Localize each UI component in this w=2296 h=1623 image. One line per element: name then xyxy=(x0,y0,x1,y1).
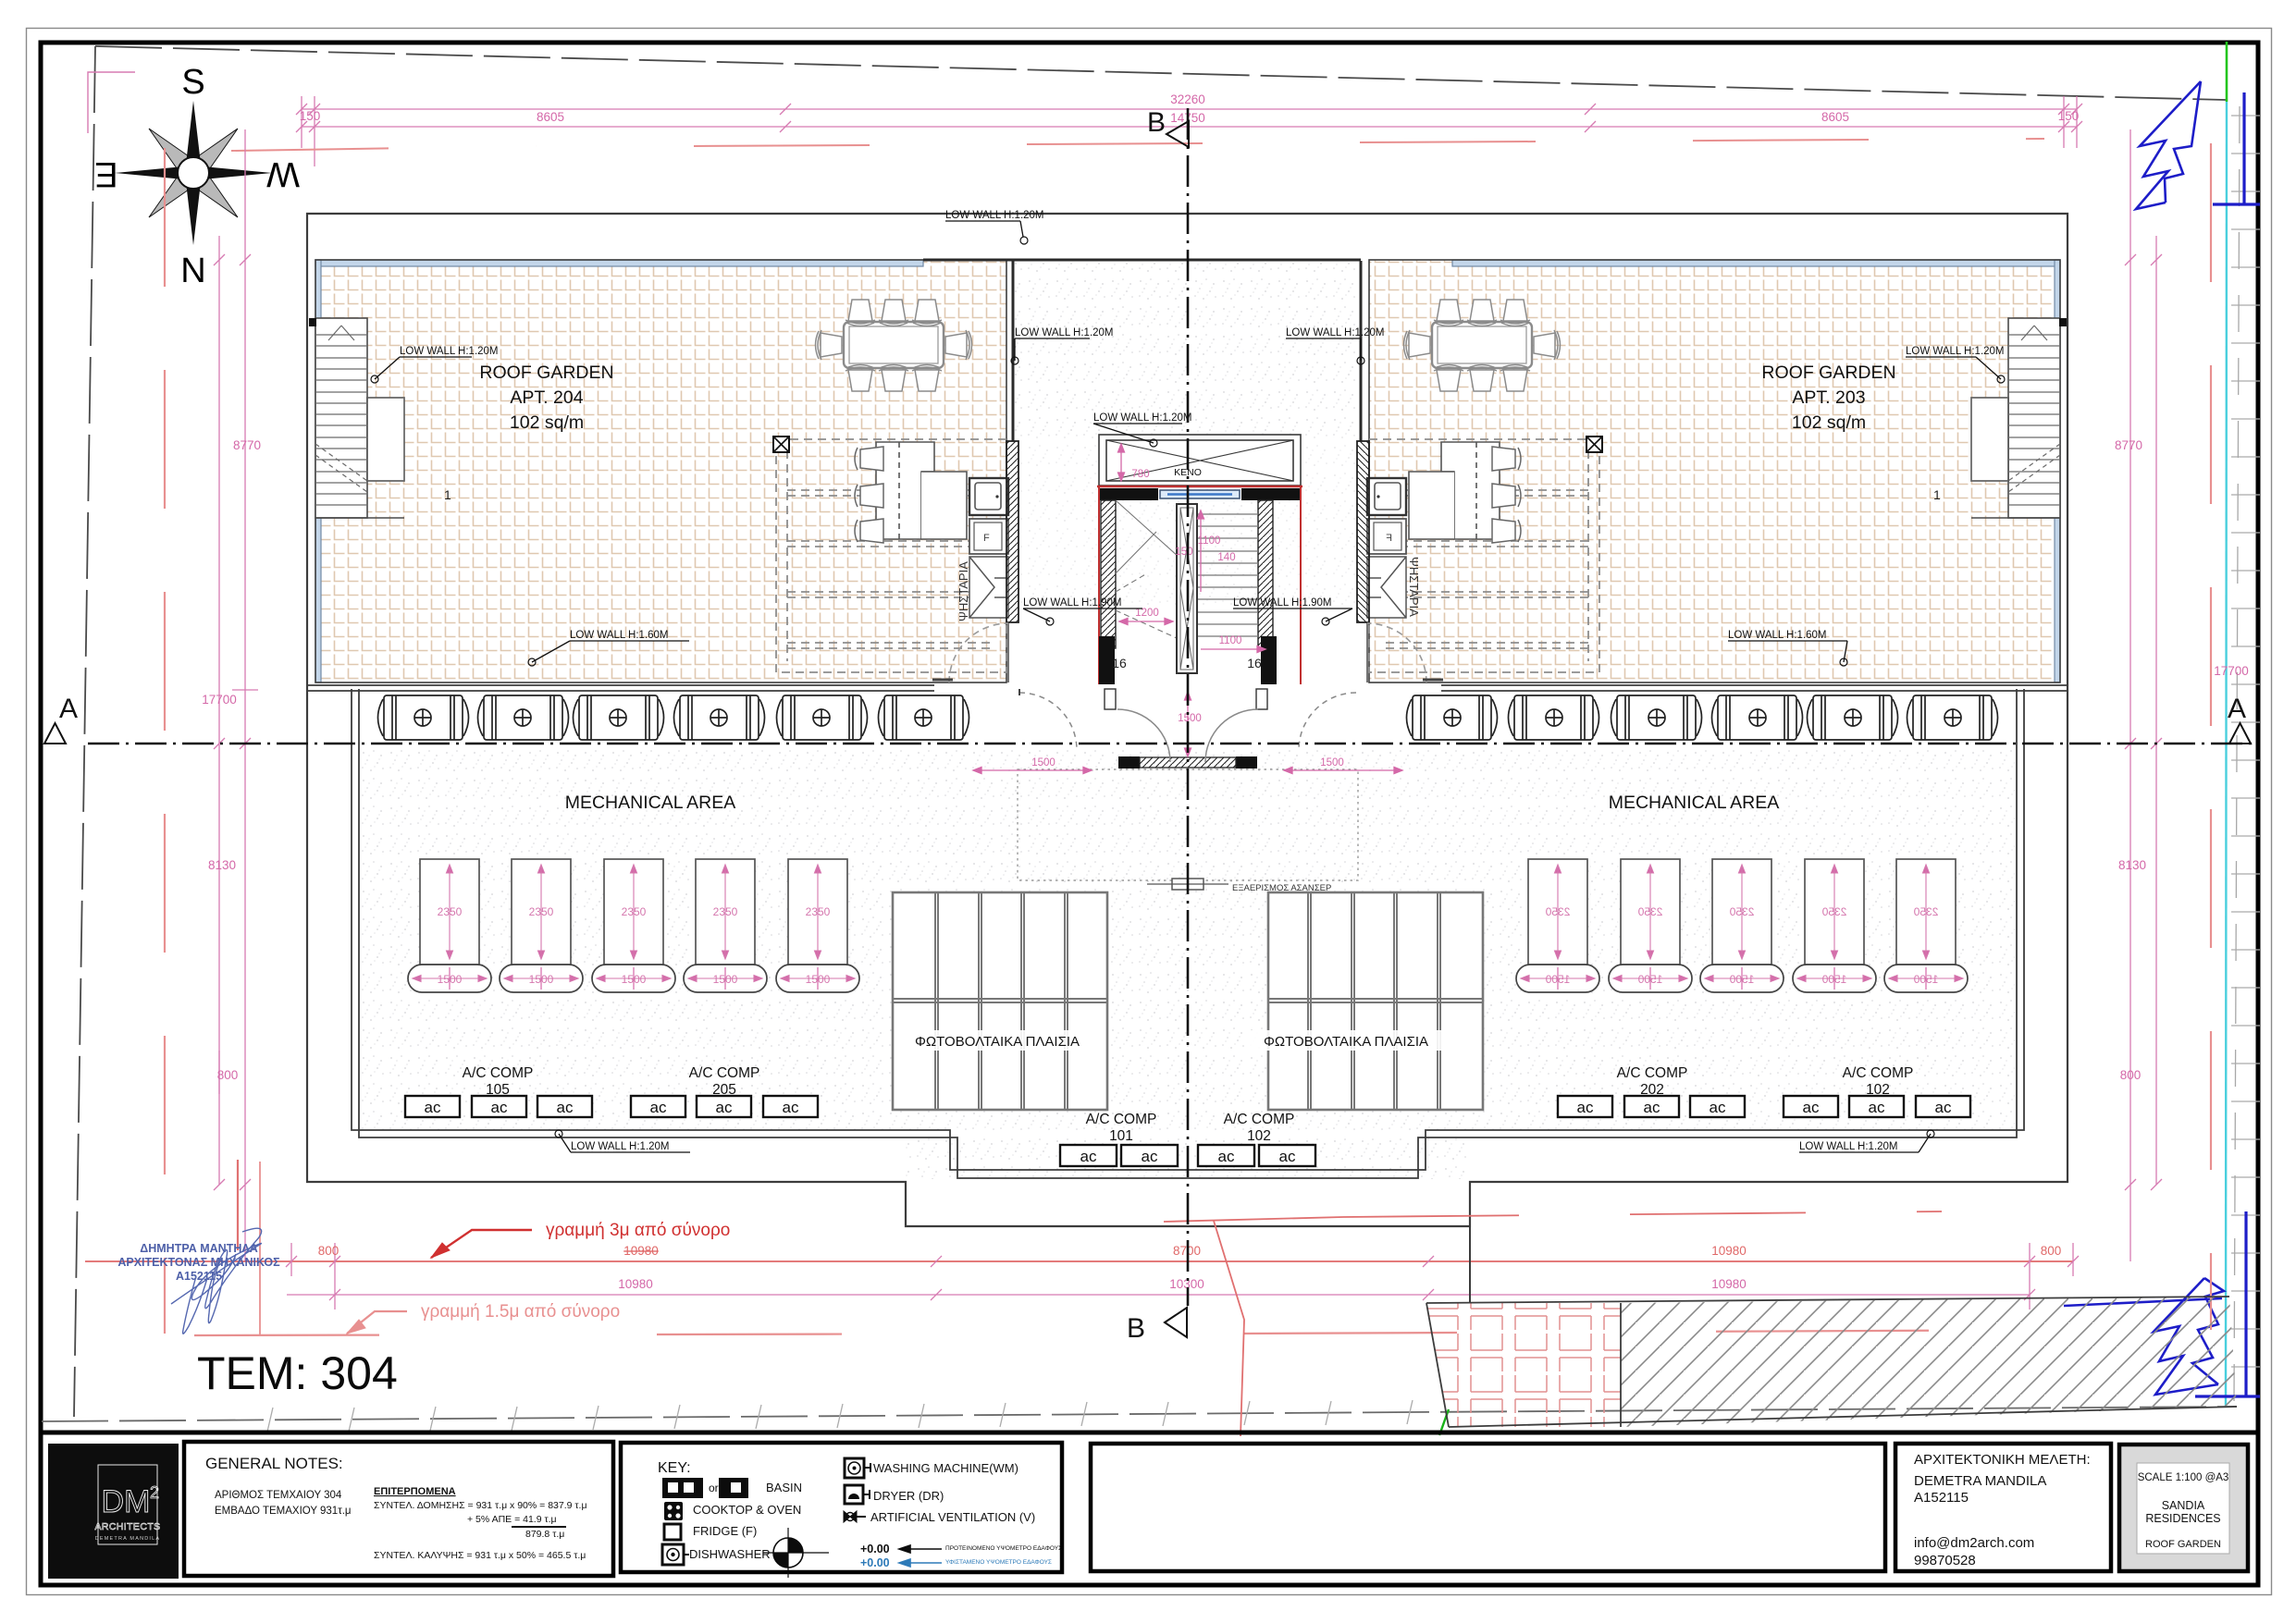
svg-text:2350: 2350 xyxy=(806,905,831,918)
svg-text:LOW WALL H:1.20M: LOW WALL H:1.20M xyxy=(945,210,1044,221)
svg-text:800: 800 xyxy=(2120,1068,2142,1082)
svg-text:MECHANICAL AREA: MECHANICAL AREA xyxy=(1609,793,1780,813)
svg-text:8130: 8130 xyxy=(2118,858,2146,872)
svg-text:ac: ac xyxy=(1803,1099,1820,1116)
svg-text:ac: ac xyxy=(1218,1148,1235,1165)
svg-text:ΠΡΟΤΕΙΝΟΜΕΝΟ ΥΨΟΜΕΤΡΟ ΕΔΑΦΟΥΣ: ΠΡΟΤΕΙΝΟΜΕΝΟ ΥΨΟΜΕΤΡΟ ΕΔΑΦΟΥΣ xyxy=(945,1545,1062,1552)
svg-text:8605: 8605 xyxy=(1821,110,1849,124)
svg-text:102 sq/m: 102 sq/m xyxy=(1792,412,1866,433)
svg-text:A: A xyxy=(2228,694,2246,724)
svg-text:ΦΩΤΟΒΟΛΤΑΙΚΑ ΠΛΑΙΣΙΑ: ΦΩΤΟΒΟΛΤΑΙΚΑ ΠΛΑΙΣΙΑ xyxy=(1264,1034,1428,1050)
svg-text:LOW WALL H:1.90M: LOW WALL H:1.90M xyxy=(1023,597,1122,609)
svg-text:+ 5% ΑΠΕ = 41.9 τ.μ: + 5% ΑΠΕ = 41.9 τ.μ xyxy=(467,1514,557,1525)
svg-text:ΑΡΧΙΤΕΚΤΟΝΙΚΗ ΜΕΛΕΤΗ:: ΑΡΧΙΤΕΚΤΟΝΙΚΗ ΜΕΛΕΤΗ: xyxy=(1914,1452,2091,1468)
svg-text:101: 101 xyxy=(1109,1128,1133,1144)
svg-text:ΨΗΣΤΑΡΙΑ: ΨΗΣΤΑΡΙΑ xyxy=(1407,557,1421,617)
svg-text:1500: 1500 xyxy=(438,973,463,986)
svg-text:DEMETRA MANDILA: DEMETRA MANDILA xyxy=(95,1536,161,1542)
svg-text:2350: 2350 xyxy=(438,905,463,918)
svg-text:MECHANICAL AREA: MECHANICAL AREA xyxy=(565,793,736,813)
svg-text:ac: ac xyxy=(716,1099,733,1116)
svg-text:ΨΗΣΤΑΡΙΑ: ΨΗΣΤΑΡΙΑ xyxy=(957,561,970,621)
svg-text:ΥΦΙΣΤΑΜΕΝΟ ΥΨΟΜΕΤΡΟ ΕΔΑΦΟΥΣ: ΥΦΙΣΤΑΜΕΝΟ ΥΨΟΜΕΤΡΟ ΕΔΑΦΟΥΣ xyxy=(945,1559,1052,1566)
svg-text:A/C COMP: A/C COMP xyxy=(689,1065,760,1081)
svg-text:1100: 1100 xyxy=(1219,635,1242,646)
svg-text:ac: ac xyxy=(1869,1099,1885,1116)
svg-text:202: 202 xyxy=(1640,1082,1664,1098)
svg-text:ΣΥΝΤΕΛ. ΚΑΛΥΨΗΣ = 931 τ.μ x 50: ΣΥΝΤΕΛ. ΚΑΛΥΨΗΣ = 931 τ.μ x 50% = 465.5 … xyxy=(374,1550,586,1561)
svg-text:ΤΕΜ: 304: ΤΕΜ: 304 xyxy=(197,1347,398,1399)
svg-text:ac: ac xyxy=(783,1099,799,1116)
svg-text:32260: 32260 xyxy=(1170,92,1205,106)
svg-text:10980: 10980 xyxy=(618,1277,653,1291)
svg-text:150: 150 xyxy=(2058,109,2080,123)
svg-text:140: 140 xyxy=(1217,552,1235,563)
svg-text:LOW WALL H:1.20M: LOW WALL H:1.20M xyxy=(1906,346,2005,357)
svg-text:ΕΜΒΑΔΟ ΤΕΜΑΧΙΟΥ 931τ.μ: ΕΜΒΑΔΟ ΤΕΜΑΧΙΟΥ 931τ.μ xyxy=(215,1506,352,1517)
svg-text:16: 16 xyxy=(1247,656,1262,670)
svg-text:ΣΥΝΤΕΛ. ΔΟΜΗΣΗΣ = 931 τ.μ x 90: ΣΥΝΤΕΛ. ΔΟΜΗΣΗΣ = 931 τ.μ x 90% = 837.9 … xyxy=(374,1500,587,1511)
svg-text:GENERAL NOTES:: GENERAL NOTES: xyxy=(205,1455,343,1472)
svg-text:1500: 1500 xyxy=(1031,757,1055,768)
svg-text:BASIN: BASIN xyxy=(766,1481,802,1494)
svg-text:1500: 1500 xyxy=(1320,757,1344,768)
svg-text:ARTIFICIAL VENTILATION (V): ARTIFICIAL VENTILATION (V) xyxy=(870,1510,1035,1524)
svg-text:A/C COMP: A/C COMP xyxy=(1086,1112,1157,1127)
svg-text:10980: 10980 xyxy=(1711,1277,1747,1291)
svg-text:8130: 8130 xyxy=(208,858,236,872)
svg-text:ac: ac xyxy=(1577,1099,1594,1116)
svg-text:ac: ac xyxy=(1710,1099,1726,1116)
svg-text:1200: 1200 xyxy=(1135,608,1159,619)
svg-text:or: or xyxy=(709,1482,719,1494)
svg-text:ac: ac xyxy=(491,1099,508,1116)
svg-text:2: 2 xyxy=(150,1483,159,1502)
svg-text:W: W xyxy=(266,154,300,193)
svg-text:A/C COMP: A/C COMP xyxy=(1224,1112,1295,1127)
svg-text:ROOF GARDEN: ROOF GARDEN xyxy=(1761,363,1895,383)
svg-text:ΕΠΙΤΕΡΠΟΜΕΝΑ: ΕΠΙΤΕΡΠΟΜΕΝΑ xyxy=(374,1486,456,1497)
svg-text:γραμμή 1.5μ από σύνορο: γραμμή 1.5μ από σύνορο xyxy=(421,1302,620,1322)
svg-text:LOW WALL H:1.20M: LOW WALL H:1.20M xyxy=(400,346,499,357)
svg-text:S: S xyxy=(181,63,204,102)
svg-text:8605: 8605 xyxy=(537,110,564,124)
svg-text:LOW WALL H:1.20M: LOW WALL H:1.20M xyxy=(1286,327,1385,338)
svg-text:ac: ac xyxy=(557,1099,574,1116)
svg-text:LOW WALL H:1.20M: LOW WALL H:1.20M xyxy=(1015,327,1114,338)
svg-text:800: 800 xyxy=(217,1068,239,1082)
svg-text:DM: DM xyxy=(102,1484,151,1519)
svg-text:ac: ac xyxy=(1644,1099,1660,1116)
svg-text:LOW WALL H:1.20M: LOW WALL H:1.20M xyxy=(1799,1141,1898,1152)
svg-text:2350: 2350 xyxy=(622,905,647,918)
svg-text:info@dm2arch.com: info@dm2arch.com xyxy=(1914,1535,2034,1551)
svg-text:800: 800 xyxy=(318,1244,339,1258)
svg-text:APT. 204: APT. 204 xyxy=(510,387,583,408)
svg-text:102 sq/m: 102 sq/m xyxy=(510,412,584,433)
svg-text:102: 102 xyxy=(1247,1128,1271,1144)
svg-text:2350: 2350 xyxy=(529,905,554,918)
svg-text:ac: ac xyxy=(425,1099,441,1116)
svg-text:+0.00: +0.00 xyxy=(860,1543,890,1555)
svg-text:8770: 8770 xyxy=(2115,438,2142,452)
svg-text:LOW WALL H:1.20M: LOW WALL H:1.20M xyxy=(571,1141,670,1152)
svg-text:A/C COMP: A/C COMP xyxy=(1617,1065,1688,1081)
svg-text:WASHING MACHINE(WM): WASHING MACHINE(WM) xyxy=(873,1461,1018,1475)
svg-text:780: 780 xyxy=(1131,469,1149,480)
svg-text:105: 105 xyxy=(486,1082,510,1098)
svg-text:8770: 8770 xyxy=(233,438,261,452)
svg-text:16: 16 xyxy=(1112,656,1127,670)
svg-text:DEMETRA MANDILA: DEMETRA MANDILA xyxy=(1914,1473,2046,1489)
svg-text:10980: 10980 xyxy=(1711,1244,1747,1258)
svg-text:RESIDENCES: RESIDENCES xyxy=(2145,1512,2220,1525)
svg-text:ac: ac xyxy=(1935,1099,1952,1116)
svg-text:A152115: A152115 xyxy=(1914,1490,1969,1506)
svg-text:COOKTOP & OVEN: COOKTOP & OVEN xyxy=(693,1503,801,1517)
svg-text:ΑΡΙΘΜΟΣ ΤΕΜΧΑΙΟΥ 304: ΑΡΙΘΜΟΣ ΤΕΜΧΑΙΟΥ 304 xyxy=(215,1490,342,1501)
svg-text:1500: 1500 xyxy=(622,973,647,986)
svg-text:DRYER (DR): DRYER (DR) xyxy=(873,1489,944,1503)
svg-text:ARCH!TECTS: ARCH!TECTS xyxy=(94,1521,160,1532)
svg-text:1500: 1500 xyxy=(713,973,738,986)
svg-text:ROOF GARDEN: ROOF GARDEN xyxy=(2145,1539,2221,1550)
svg-text:1500: 1500 xyxy=(1178,713,1202,724)
svg-text:E: E xyxy=(94,154,117,193)
svg-text:10980: 10980 xyxy=(623,1244,659,1258)
svg-text:879.8 τ.μ: 879.8 τ.μ xyxy=(525,1529,564,1540)
svg-text:F: F xyxy=(983,533,990,544)
svg-text:FRIDGE (F): FRIDGE (F) xyxy=(693,1524,757,1538)
svg-text:800: 800 xyxy=(2041,1244,2062,1258)
svg-text:SANDIA: SANDIA xyxy=(2162,1499,2205,1512)
svg-text:LOW WALL H:1.60M: LOW WALL H:1.60M xyxy=(1728,630,1827,641)
svg-text:ac: ac xyxy=(1279,1148,1296,1165)
svg-text:ΑΡΧΙΤΕΚΤΟΝΑΣ ΜΗΧΑΝΙΚΟΣ: ΑΡΧΙΤΕΚΤΟΝΑΣ ΜΗΧΑΝΙΚΟΣ xyxy=(117,1256,280,1269)
svg-text:A/C COMP: A/C COMP xyxy=(463,1065,534,1081)
svg-text:17700: 17700 xyxy=(2214,664,2249,678)
svg-text:ΦΩΤΟΒΟΛΤΑΙΚΑ ΠΛΑΙΣΙΑ: ΦΩΤΟΒΟΛΤΑΙΚΑ ΠΛΑΙΣΙΑ xyxy=(915,1034,1080,1050)
svg-text:ac: ac xyxy=(650,1099,667,1116)
svg-text:ΕΞΑΕΡΙΣΜΟΣ ΑΣΑΝΣΕΡ: ΕΞΑΕΡΙΣΜΟΣ ΑΣΑΝΣΕΡ xyxy=(1232,883,1331,893)
svg-text:150: 150 xyxy=(300,109,321,123)
svg-text:B: B xyxy=(1127,1313,1145,1344)
svg-text:99870528: 99870528 xyxy=(1914,1553,1976,1568)
svg-text:1: 1 xyxy=(1933,487,1941,502)
svg-text:1500: 1500 xyxy=(529,973,554,986)
svg-text:2350: 2350 xyxy=(713,905,738,918)
svg-text:A: A xyxy=(59,694,78,724)
svg-text:ROOF GARDEN: ROOF GARDEN xyxy=(479,363,613,383)
svg-text:ac: ac xyxy=(1080,1148,1097,1165)
svg-text:B: B xyxy=(1147,107,1166,138)
svg-text:1500: 1500 xyxy=(806,973,831,986)
svg-text:150: 150 xyxy=(1175,547,1192,558)
svg-text:205: 205 xyxy=(712,1082,736,1098)
svg-text:A/C COMP: A/C COMP xyxy=(1843,1065,1914,1081)
svg-text:102: 102 xyxy=(1866,1082,1890,1098)
svg-text:LOW WALL H:1.90M: LOW WALL H:1.90M xyxy=(1233,597,1332,609)
svg-text:LOW WALL H:1.60M: LOW WALL H:1.60M xyxy=(570,630,669,641)
svg-text:KEY:: KEY: xyxy=(658,1460,691,1476)
svg-text:1: 1 xyxy=(444,487,451,502)
svg-text:N: N xyxy=(180,252,205,290)
svg-text:SCALE 1:100 @A3: SCALE 1:100 @A3 xyxy=(2138,1472,2229,1483)
svg-text:17700: 17700 xyxy=(202,693,237,707)
svg-text:γραμμή 3μ από σύνορο: γραμμή 3μ από σύνορο xyxy=(546,1221,730,1240)
svg-text:ac: ac xyxy=(1142,1148,1158,1165)
svg-text:LOW WALL H:1.20M: LOW WALL H:1.20M xyxy=(1093,412,1192,424)
svg-text:+0.00: +0.00 xyxy=(860,1556,890,1569)
svg-text:APT. 203: APT. 203 xyxy=(1792,387,1865,408)
